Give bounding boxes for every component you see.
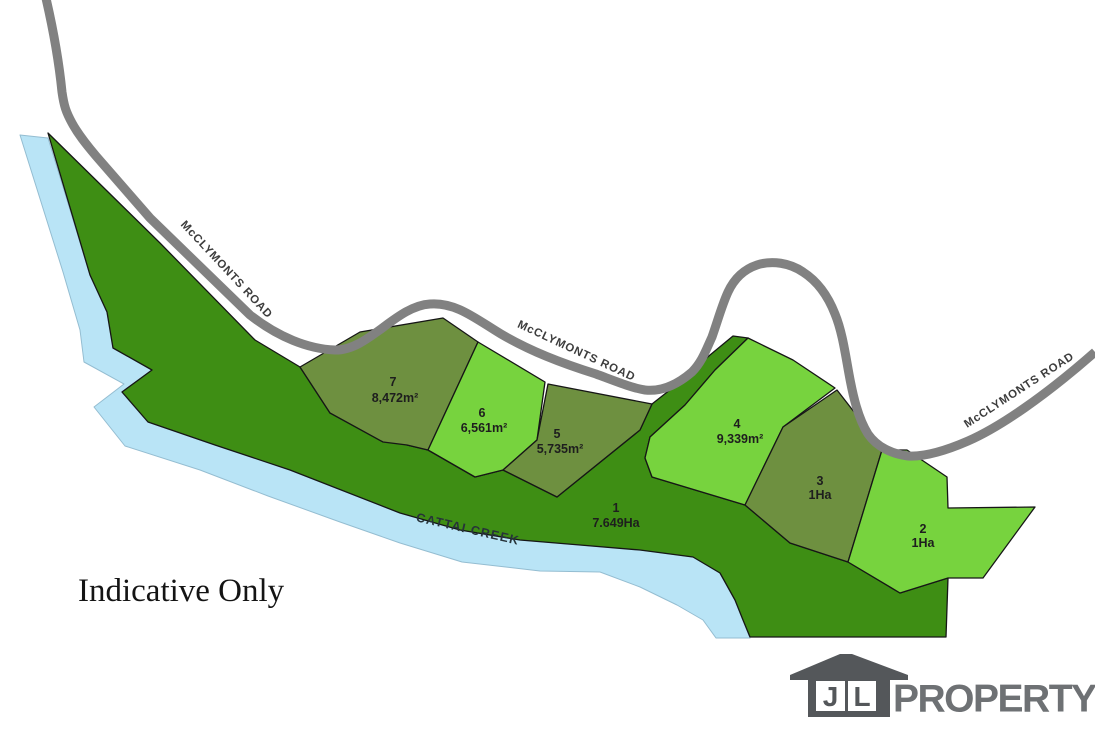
jl-property-logo: J L PROPERTY <box>785 643 1095 730</box>
lot-2-region <box>848 450 1035 593</box>
lot-6-number: 6 <box>479 406 486 420</box>
indicative-note: Indicative Only <box>78 573 284 610</box>
logo-letter-l: L <box>853 681 870 712</box>
logo-letter-j: J <box>823 681 839 712</box>
lot-4-area: 9,339m² <box>717 432 764 446</box>
house-icon: J L <box>790 654 908 717</box>
lot-5-area: 5,735m² <box>537 442 584 456</box>
lot-7-area: 8,472m² <box>372 391 419 405</box>
lot-1-number: 1 <box>613 501 620 515</box>
road-label-right: McCLYMONTS ROAD <box>962 350 1076 430</box>
lot-5-number: 5 <box>554 427 561 441</box>
lot-3-number: 3 <box>817 474 824 488</box>
lot-2-area: 1Ha <box>912 536 936 550</box>
lot-2-number: 2 <box>920 522 927 536</box>
house-roof <box>790 654 908 680</box>
lot-3-area: 1Ha <box>809 488 833 502</box>
lot-6-area: 6,561m² <box>461 421 508 435</box>
property-map-canvas: McCLYMONTS ROAD McCLYMONTS ROAD McCLYMON… <box>0 0 1095 730</box>
map-svg: McCLYMONTS ROAD McCLYMONTS ROAD McCLYMON… <box>0 0 1095 730</box>
lot-1-area: 7.649Ha <box>592 516 640 530</box>
brand-name: PROPERTY <box>893 678 1095 721</box>
lot-4-number: 4 <box>734 417 741 431</box>
lot-7-number: 7 <box>390 375 397 389</box>
